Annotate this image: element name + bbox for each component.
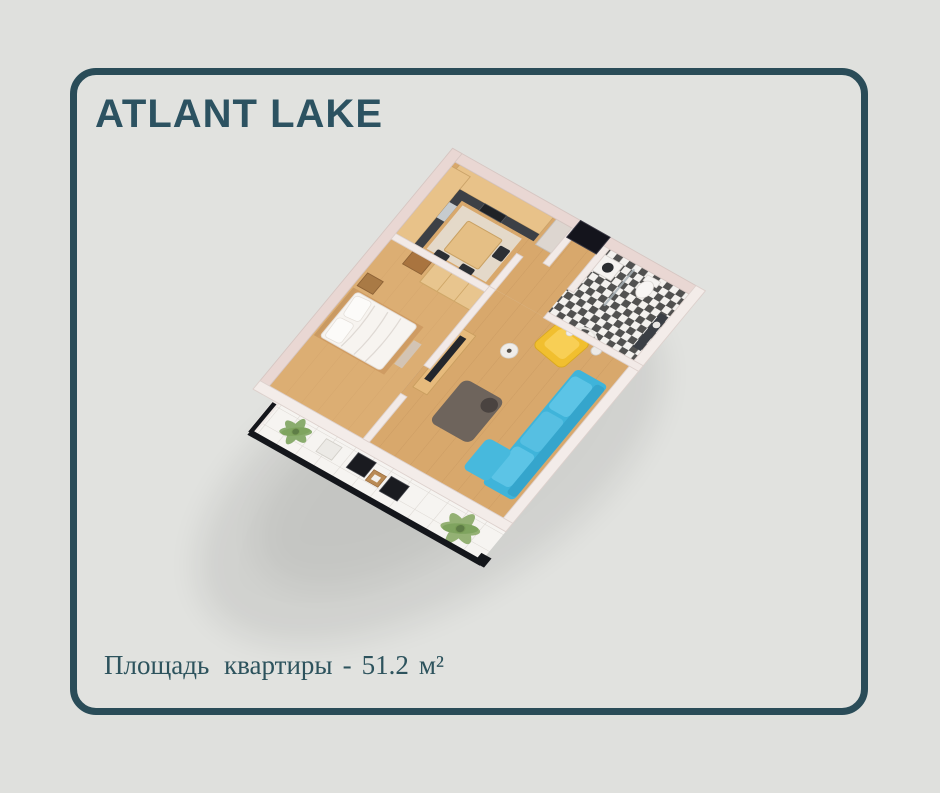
project-title: ATLANT LAKE: [95, 92, 383, 136]
area-text: Площадь квартиры-51.2м²: [104, 650, 444, 681]
area-separator: -: [343, 650, 352, 680]
area-unit: м²: [419, 650, 444, 680]
area-value: 51.2: [362, 650, 409, 680]
area-label: Площадь квартиры: [104, 650, 333, 680]
flyer-card: [70, 68, 868, 715]
